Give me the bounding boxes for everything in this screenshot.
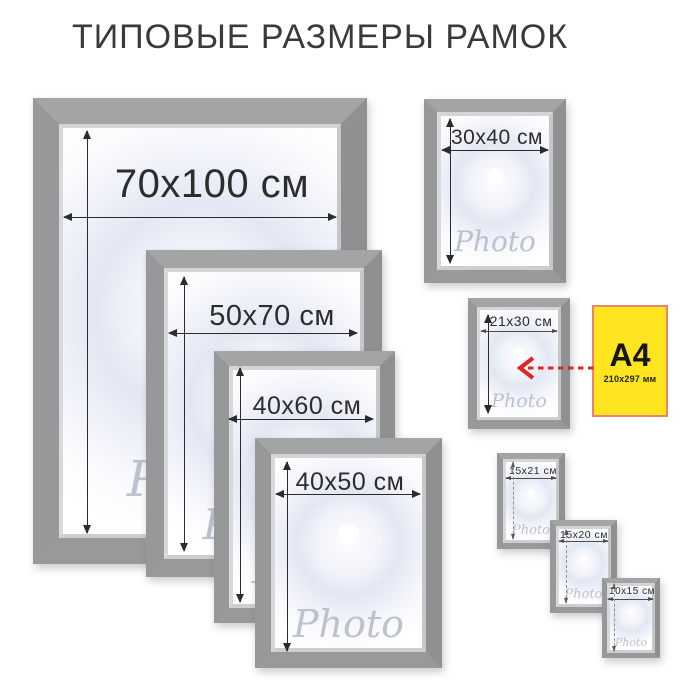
a4-dimensions: 210x297 мм: [604, 374, 657, 384]
height-arrow-50x70: [184, 277, 185, 551]
height-arrow-15x21: [513, 462, 514, 539]
size-label-50x70: 50x70 см: [209, 300, 335, 333]
width-arrow-40x60: [229, 419, 373, 420]
size-label-70x100: 70x100 см: [115, 162, 309, 207]
width-arrow-40x50: [276, 494, 420, 495]
photo-watermark: Photo: [565, 587, 603, 602]
height-arrow-15x20: [566, 530, 567, 603]
frame-sizes-infographic: ТИПОВЫЕ РАЗМЕРЫ РАМОК Photo Photo Photo …: [0, 0, 700, 700]
height-arrow-30x40: [450, 119, 451, 263]
photo-watermark: Photo: [454, 225, 536, 258]
size-label-15x21: 15x21 см: [509, 465, 557, 477]
photo-watermark: Photo: [615, 636, 647, 649]
width-arrow-30x40: [442, 150, 548, 151]
width-arrow-70x100: [64, 217, 336, 218]
height-arrow-40x50: [287, 462, 288, 651]
height-arrow-21x30: [488, 315, 489, 413]
height-arrow-70x100: [87, 131, 88, 533]
photo-watermark: Photo: [512, 523, 550, 538]
size-label-40x60: 40x60 см: [253, 392, 362, 421]
size-label-21x30: 21x30 см: [490, 313, 553, 329]
height-arrow-40x60: [240, 368, 241, 602]
photo-watermark: Photo: [293, 602, 404, 646]
a4-size-note: A4 210x297 мм: [592, 305, 668, 417]
photo-watermark: Photo: [491, 390, 547, 412]
a4-label: A4: [610, 339, 651, 371]
a4-pointer-arrow-icon: [516, 356, 598, 380]
page-title: ТИПОВЫЕ РАЗМЕРЫ РАМОК: [0, 18, 640, 57]
height-arrow-10x15: [614, 584, 615, 651]
width-arrow-50x70: [169, 333, 357, 334]
width-arrow-21x30: [481, 331, 557, 332]
size-label-40x50: 40x50 см: [296, 468, 405, 497]
size-label-30x40: 30x40 см: [451, 126, 543, 150]
